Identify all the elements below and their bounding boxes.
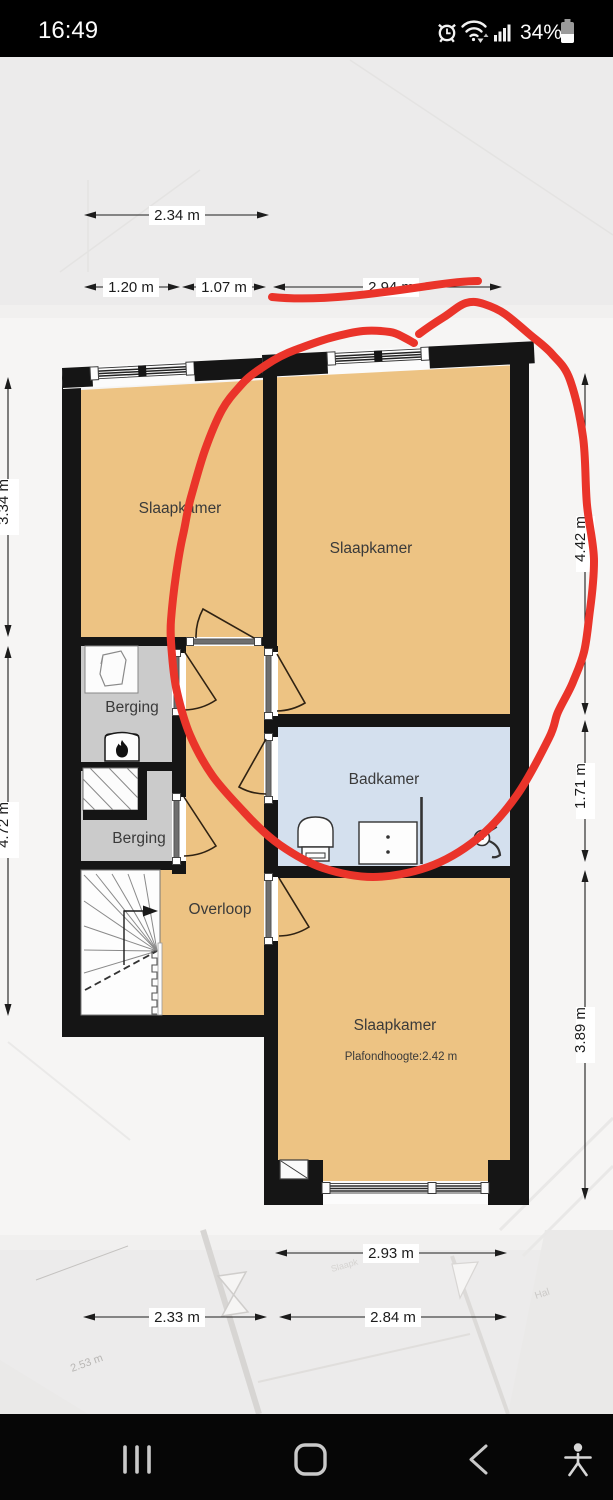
svg-text:Slaapkamer: Slaapkamer bbox=[139, 500, 222, 517]
svg-text:Slaapkamer: Slaapkamer bbox=[330, 540, 413, 557]
svg-text:34%: 34% bbox=[520, 21, 562, 44]
svg-text:3.89 m: 3.89 m bbox=[572, 1007, 589, 1053]
svg-text:Slaapkamer: Slaapkamer bbox=[354, 1017, 437, 1034]
svg-text:4.72 m: 4.72 m bbox=[0, 802, 12, 848]
svg-text:3.34 m: 3.34 m bbox=[0, 479, 12, 525]
svg-text:1.07 m: 1.07 m bbox=[201, 279, 247, 296]
svg-text:1.71 m: 1.71 m bbox=[572, 763, 589, 809]
svg-text:1.20 m: 1.20 m bbox=[108, 279, 154, 296]
svg-text:Plafondhoogte:2.42 m: Plafondhoogte:2.42 m bbox=[345, 1051, 458, 1063]
svg-text:Berging: Berging bbox=[105, 699, 158, 716]
svg-text:2.84 m: 2.84 m bbox=[370, 1309, 416, 1326]
svg-text:Overloop: Overloop bbox=[189, 901, 252, 918]
svg-text:2.33 m: 2.33 m bbox=[154, 1309, 200, 1326]
svg-text:16:49: 16:49 bbox=[38, 17, 98, 44]
svg-text:Badkamer: Badkamer bbox=[349, 771, 420, 788]
svg-text:2.93 m: 2.93 m bbox=[368, 1245, 414, 1262]
svg-text:2.34 m: 2.34 m bbox=[154, 207, 200, 224]
svg-text:Berging: Berging bbox=[112, 830, 165, 847]
